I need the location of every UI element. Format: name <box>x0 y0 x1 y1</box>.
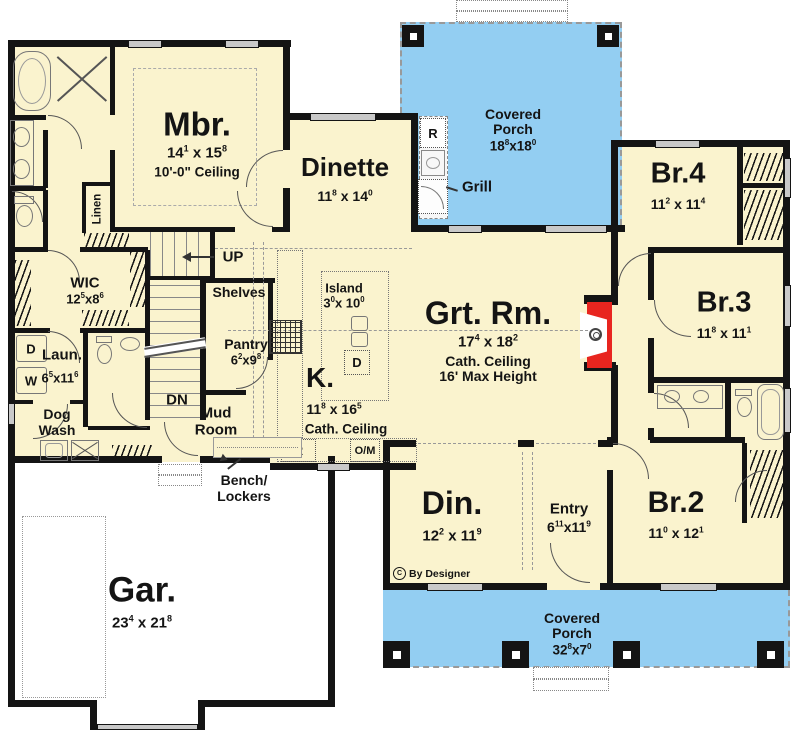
window <box>8 403 15 425</box>
copyright: C By Designer <box>393 567 470 580</box>
up-label: UP <box>223 250 244 265</box>
dinette-dim: 118 x 140 <box>317 189 372 203</box>
wall <box>8 328 50 333</box>
toilet-tank <box>14 196 34 204</box>
garage-door-bay <box>97 700 198 726</box>
garage-steps <box>158 475 202 486</box>
wall <box>328 456 335 707</box>
wic-label: WIC <box>70 276 99 291</box>
kitchen-dim: 118 x 165 <box>306 402 361 416</box>
wall <box>8 700 97 707</box>
sink <box>693 390 709 403</box>
br3-dim: 118 x 111 <box>697 326 752 340</box>
bathtub-basin <box>761 389 780 435</box>
wall <box>200 390 246 395</box>
wall <box>737 147 743 245</box>
wall <box>82 185 86 233</box>
window <box>448 225 482 233</box>
wall <box>200 278 206 420</box>
porch-column <box>757 641 784 668</box>
br3-label: Br.3 <box>697 289 752 318</box>
porch-bottom-label-2: Porch <box>552 626 592 640</box>
window <box>655 140 700 148</box>
great-room-label: Grt. Rm. <box>425 297 551 329</box>
shower <box>57 50 107 108</box>
fireplace-vent-dot <box>593 332 600 339</box>
linen-label: Linen <box>92 194 104 225</box>
oven-microwave-label: O/M <box>355 445 376 457</box>
sink <box>120 337 140 351</box>
wall <box>611 225 618 305</box>
toilet-tank <box>735 389 752 396</box>
mud-room-label-1: Mud <box>201 406 232 421</box>
covered-porch-top <box>400 22 622 114</box>
dog-wash-label-2: Wash <box>39 423 76 437</box>
porch-steps <box>456 11 568 22</box>
copyright-icon: C <box>393 567 406 580</box>
great-room-dim: 174 x 182 <box>458 335 518 350</box>
wall <box>283 47 290 113</box>
closet-hatch <box>82 310 129 326</box>
cased-opening <box>418 443 516 444</box>
wall <box>198 703 205 730</box>
floor-plan: D R O/M R D W Mbr. 141 x 158 10'-0" Ceil… <box>0 0 800 739</box>
oven-microwave-box: O/M <box>350 439 380 462</box>
sink <box>13 159 30 179</box>
br4-dim: 112 x 114 <box>651 197 706 211</box>
br4-label: Br.4 <box>651 160 706 189</box>
closet-hatch <box>744 190 784 240</box>
bathtub-basin <box>18 58 46 104</box>
island-dim: 30x 100 <box>323 297 364 310</box>
porch-steps <box>533 667 609 679</box>
up-arrow-head <box>182 252 191 262</box>
porch-bottom-label-1: Covered <box>544 611 600 625</box>
porch-bottom-right-edge <box>788 590 790 667</box>
outdoor-fridge-label: R <box>428 126 437 141</box>
garage-label: Gar. <box>108 573 176 608</box>
island-sink <box>351 316 368 331</box>
wall <box>611 365 618 445</box>
wall <box>611 140 790 147</box>
great-room-note-2: 16' Max Height <box>439 369 536 383</box>
porch-top-edge <box>400 22 621 24</box>
wall <box>783 140 790 590</box>
toilet-tank <box>96 336 112 343</box>
window <box>225 40 259 48</box>
garage-door-sill <box>97 724 198 730</box>
porch-column <box>402 25 424 47</box>
closet-hatch <box>112 445 152 457</box>
wall <box>648 383 654 393</box>
wall <box>411 113 418 232</box>
garage-steps <box>158 464 202 475</box>
porch-steps <box>533 679 609 691</box>
pantry-label: Pantry <box>224 337 268 351</box>
bench-label-2: Lockers <box>217 489 271 503</box>
laundry-label: Laun. <box>42 348 82 363</box>
stairs-upper-run <box>150 232 210 276</box>
toilet-bowl <box>737 397 752 417</box>
porch-column <box>613 641 640 668</box>
wall <box>82 182 115 186</box>
wall <box>70 400 88 404</box>
mud-room-label-2: Room <box>195 423 238 438</box>
porch-bottom-dim: 328x70 <box>552 643 591 657</box>
garage-parking-outline <box>22 516 106 698</box>
pantry-dim: 62x98 <box>231 354 261 367</box>
toilet-bowl <box>16 205 33 227</box>
entry-label: Entry <box>550 502 588 517</box>
closet-hatch <box>15 260 31 326</box>
outdoor-sink-basin <box>426 157 440 169</box>
porch-top-label-1: Covered <box>485 107 541 121</box>
dining-label: Din. <box>422 487 482 519</box>
window <box>784 388 791 433</box>
bench-label-1: Bench/ <box>221 473 268 487</box>
porch-top-dim: 188x180 <box>490 139 537 153</box>
cooktop <box>269 320 302 354</box>
kitchen-note: Cath. Ceiling <box>305 422 388 436</box>
porch-top-label-2: Porch <box>493 122 533 136</box>
washer-label: W <box>25 375 37 388</box>
window <box>128 40 162 48</box>
sink <box>664 390 680 403</box>
cased-opening <box>522 452 533 570</box>
cased-opening <box>536 443 596 444</box>
window <box>310 113 376 121</box>
window <box>660 583 717 591</box>
garage-dim: 234 x 218 <box>112 616 172 631</box>
wall <box>650 437 745 443</box>
laundry-dim: 65x116 <box>42 372 79 385</box>
dining-dim: 122 x 119 <box>422 529 481 544</box>
wall <box>43 190 48 247</box>
wall <box>272 227 290 232</box>
br2-label: Br.2 <box>648 488 705 518</box>
dog-wash-tub <box>71 440 99 461</box>
wall <box>648 338 654 377</box>
wall <box>80 328 150 333</box>
wall <box>8 247 48 252</box>
bench <box>213 437 302 458</box>
wall <box>283 120 290 150</box>
dog-wash-label-1: Dog <box>43 407 70 421</box>
porch-steps <box>456 0 568 11</box>
wall <box>607 470 613 583</box>
cased-opening <box>215 248 412 249</box>
closet-hatch <box>744 153 784 181</box>
wall <box>648 377 790 383</box>
wic-dim: 125x86 <box>66 293 104 306</box>
dinette-label: Dinette <box>301 154 389 180</box>
outdoor-fridge-box: R <box>420 118 446 148</box>
wall <box>210 232 215 278</box>
up-arrow-shaft <box>190 256 214 258</box>
shelves-label: Shelves <box>213 285 266 299</box>
dishwasher-box: D <box>344 350 370 375</box>
dog-wash-basin <box>45 443 63 458</box>
dryer-label: D <box>26 343 35 356</box>
sink <box>13 127 30 147</box>
wall <box>350 463 416 470</box>
br2-dim: 110 x 121 <box>648 526 703 540</box>
copyright-text: By Designer <box>409 568 470 580</box>
mbr-dim: 141 x 158 <box>167 146 227 161</box>
kitchen-label: K. <box>306 364 334 392</box>
entry-dim: 611x119 <box>547 520 591 534</box>
wall <box>83 333 88 427</box>
mbr-label: Mbr. <box>163 108 231 141</box>
window <box>317 463 350 471</box>
porch-column <box>597 25 619 47</box>
wall <box>611 140 618 232</box>
porch-right-edge <box>620 22 622 225</box>
closet-hatch <box>84 233 129 247</box>
wall <box>198 700 335 707</box>
great-room-note-1: Cath. Ceiling <box>445 354 531 368</box>
porch-column <box>383 641 410 668</box>
island-sink <box>351 332 368 347</box>
toilet-bowl <box>97 344 112 364</box>
closet-hatch <box>130 252 147 307</box>
wall <box>725 383 731 437</box>
window <box>545 225 607 233</box>
wall <box>110 150 115 232</box>
grill-label: Grill <box>462 180 492 195</box>
window <box>784 158 791 198</box>
porch-column <box>502 641 529 668</box>
wall <box>737 183 790 188</box>
mbr-ceiling-note: 10'-0" Ceiling <box>154 165 239 179</box>
wall <box>270 463 317 470</box>
wall <box>648 247 790 253</box>
window <box>427 583 483 591</box>
wall <box>90 703 97 730</box>
dishwasher-label: D <box>352 355 361 370</box>
island-label: Island <box>325 282 363 295</box>
wall <box>283 188 290 232</box>
wall <box>518 440 534 447</box>
wall <box>110 47 115 115</box>
dn-label: DN <box>166 393 188 408</box>
window <box>784 285 791 327</box>
